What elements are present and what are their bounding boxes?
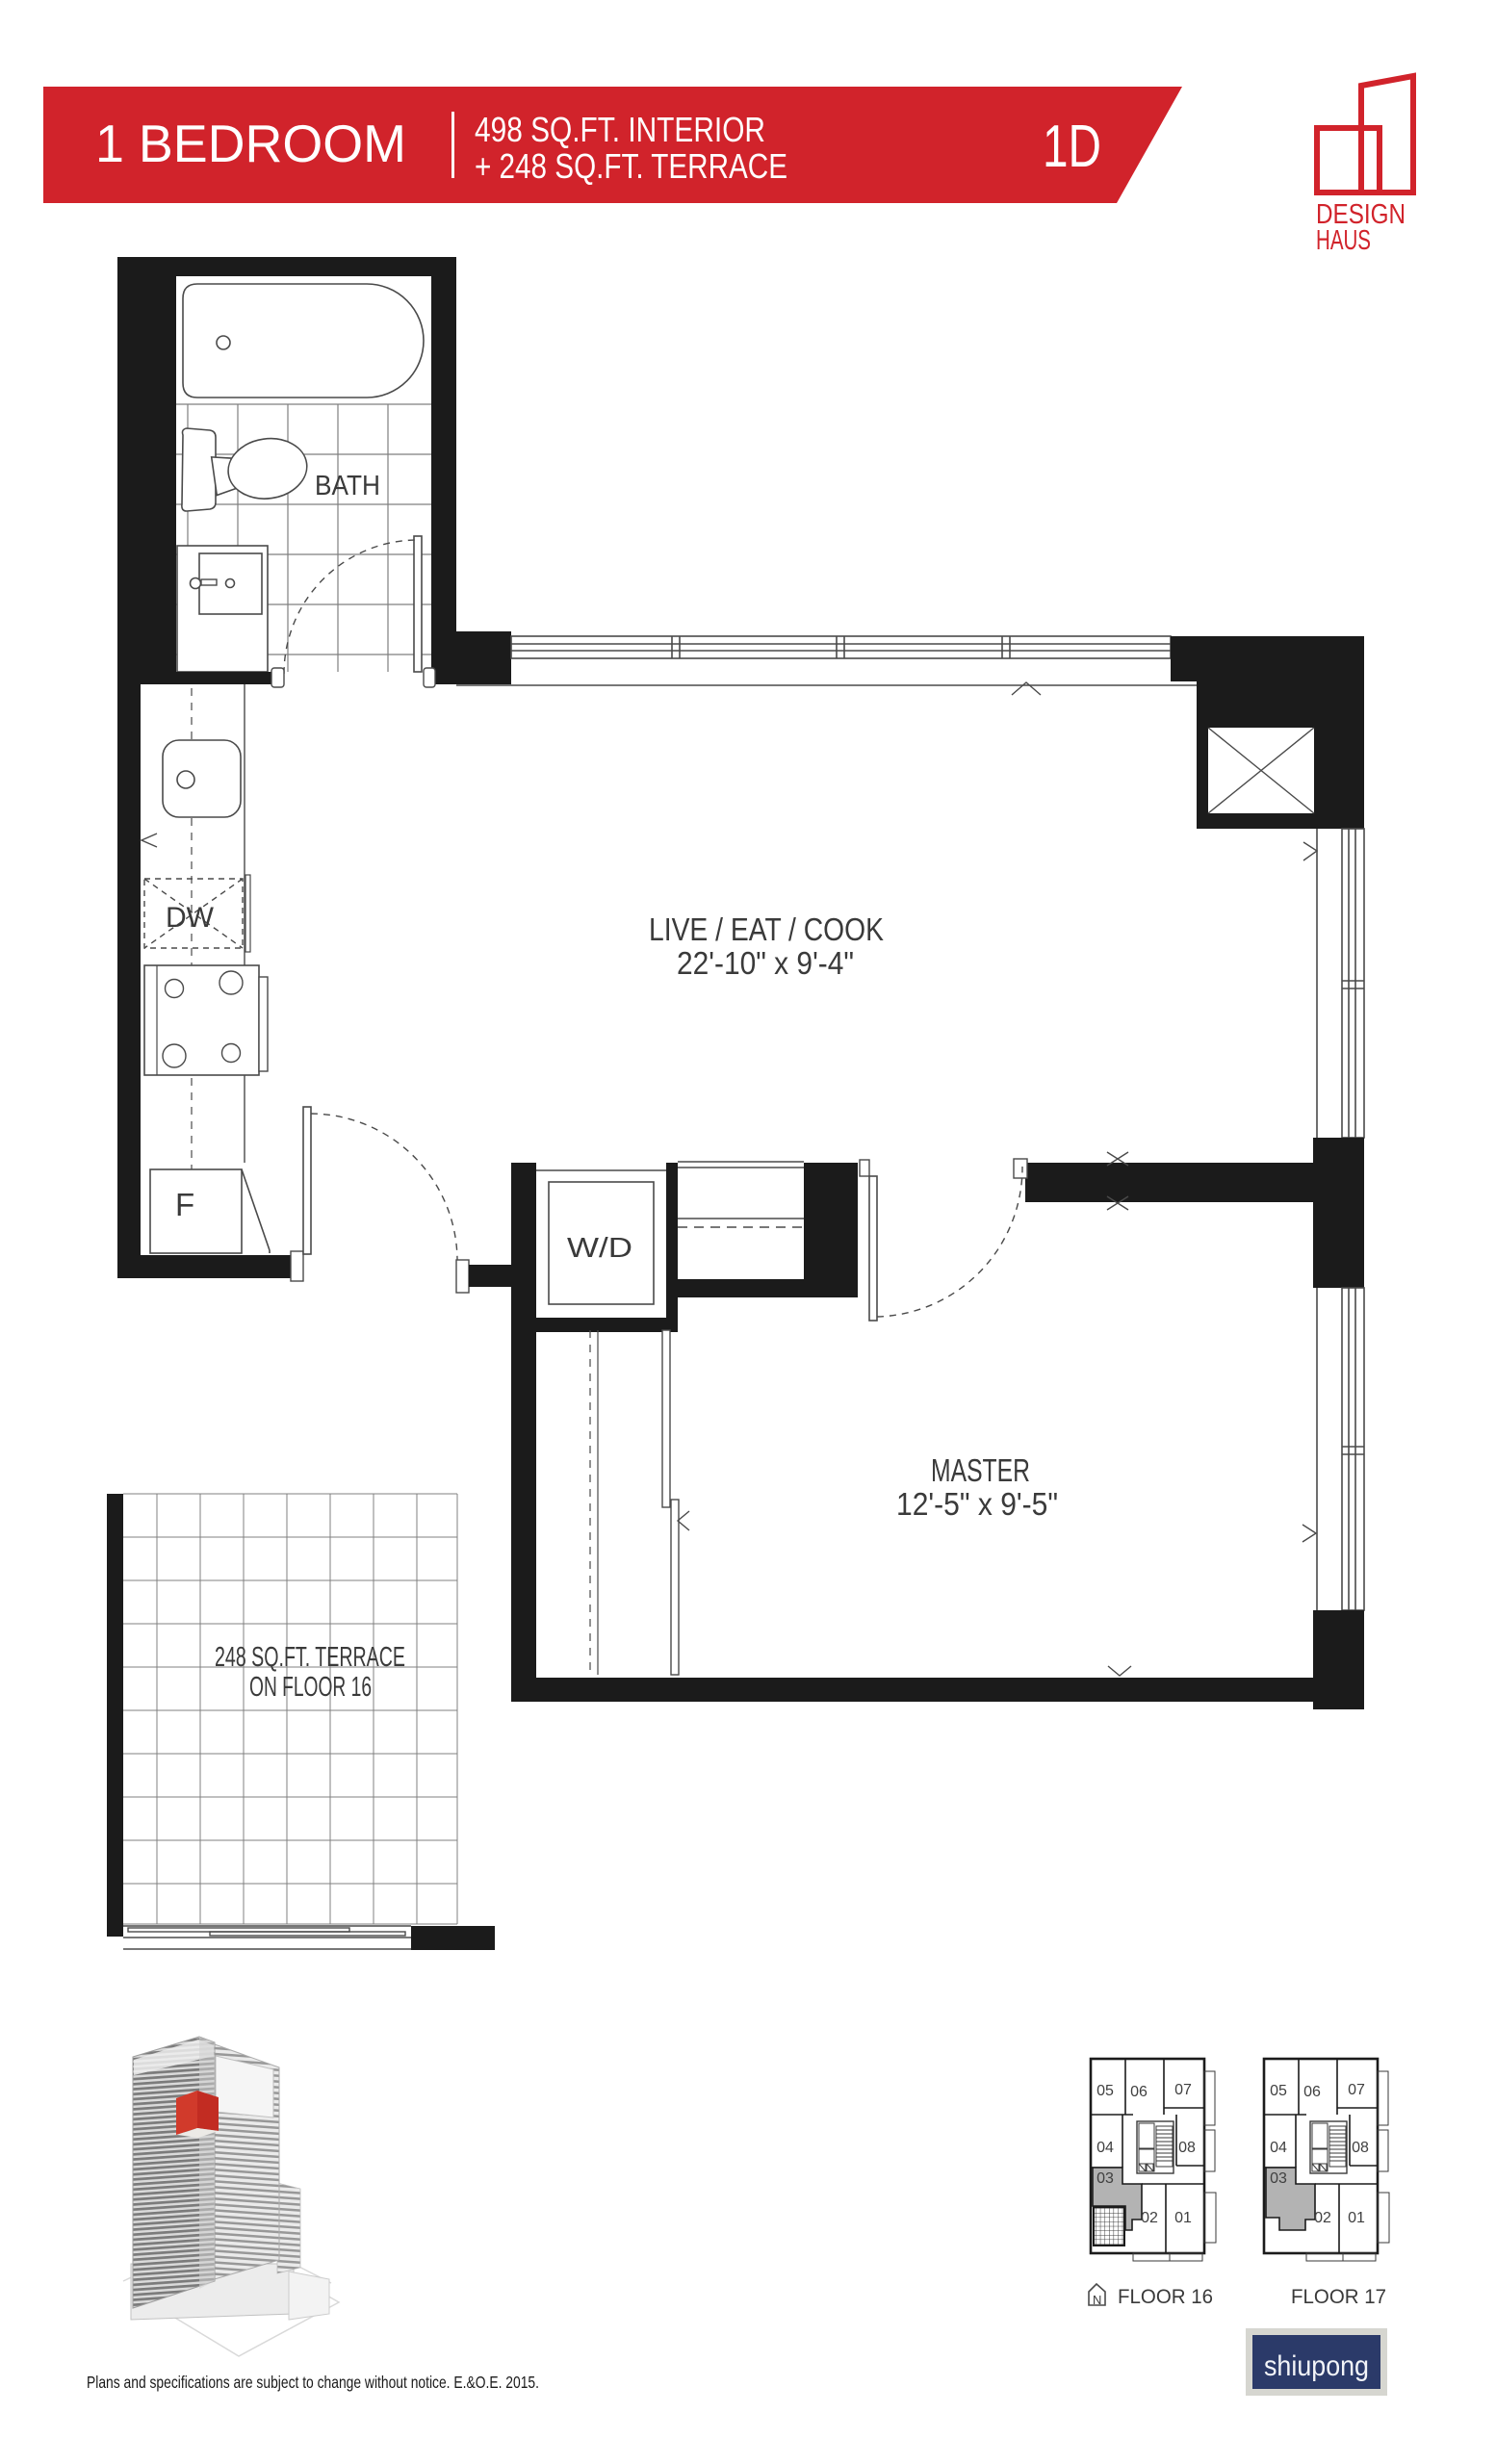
- svg-text:LIVE / EAT / COOK: LIVE / EAT / COOK: [649, 911, 884, 947]
- svg-text:08: 08: [1352, 2140, 1369, 2156]
- svg-text:Plans and specifications are s: Plans and specifications are subject to …: [87, 2373, 539, 2392]
- svg-text:12'-5" x 9'-5": 12'-5" x 9'-5": [896, 1486, 1058, 1522]
- svg-text:F: F: [175, 1187, 194, 1222]
- svg-text:W/D: W/D: [567, 1233, 632, 1264]
- svg-text:06: 06: [1303, 2084, 1321, 2100]
- svg-text:01: 01: [1348, 2210, 1365, 2226]
- svg-text:DW: DW: [166, 902, 215, 934]
- svg-text:BATH: BATH: [315, 471, 380, 501]
- svg-text:shiupong: shiupong: [1264, 2350, 1369, 2382]
- svg-text:03: 03: [1096, 2170, 1114, 2187]
- svg-text:498 SQ.FT. INTERIOR: 498 SQ.FT. INTERIOR: [475, 110, 765, 149]
- svg-text:01: 01: [1174, 2210, 1192, 2226]
- svg-text:MASTER: MASTER: [931, 1452, 1030, 1488]
- svg-text:1D: 1D: [1043, 114, 1101, 180]
- svg-text:FLOOR 17: FLOOR 17: [1291, 2285, 1386, 2308]
- svg-text:22'-10" x 9'-4": 22'-10" x 9'-4": [677, 945, 854, 981]
- svg-text:05: 05: [1096, 2083, 1114, 2099]
- svg-text:07: 07: [1174, 2082, 1192, 2098]
- svg-text:06: 06: [1130, 2084, 1148, 2100]
- svg-text:248 SQ.FT. TERRACE: 248 SQ.FT. TERRACE: [215, 1642, 405, 1673]
- svg-text:FLOOR 16: FLOOR 16: [1118, 2285, 1213, 2308]
- svg-text:HAUS: HAUS: [1316, 225, 1371, 256]
- svg-text:04: 04: [1096, 2140, 1114, 2156]
- svg-text:02: 02: [1314, 2210, 1331, 2226]
- svg-text:05: 05: [1270, 2083, 1287, 2099]
- svg-text:+ 248 SQ.FT. TERRACE: + 248 SQ.FT. TERRACE: [475, 146, 787, 186]
- svg-text:1 BEDROOM: 1 BEDROOM: [95, 114, 406, 173]
- svg-text:02: 02: [1141, 2210, 1158, 2226]
- svg-text:08: 08: [1178, 2140, 1196, 2156]
- svg-text:N: N: [1093, 2293, 1101, 2307]
- svg-text:ON FLOOR 16: ON FLOOR 16: [249, 1672, 372, 1703]
- svg-text:03: 03: [1270, 2170, 1287, 2187]
- svg-text:04: 04: [1270, 2140, 1287, 2156]
- svg-text:07: 07: [1348, 2082, 1365, 2098]
